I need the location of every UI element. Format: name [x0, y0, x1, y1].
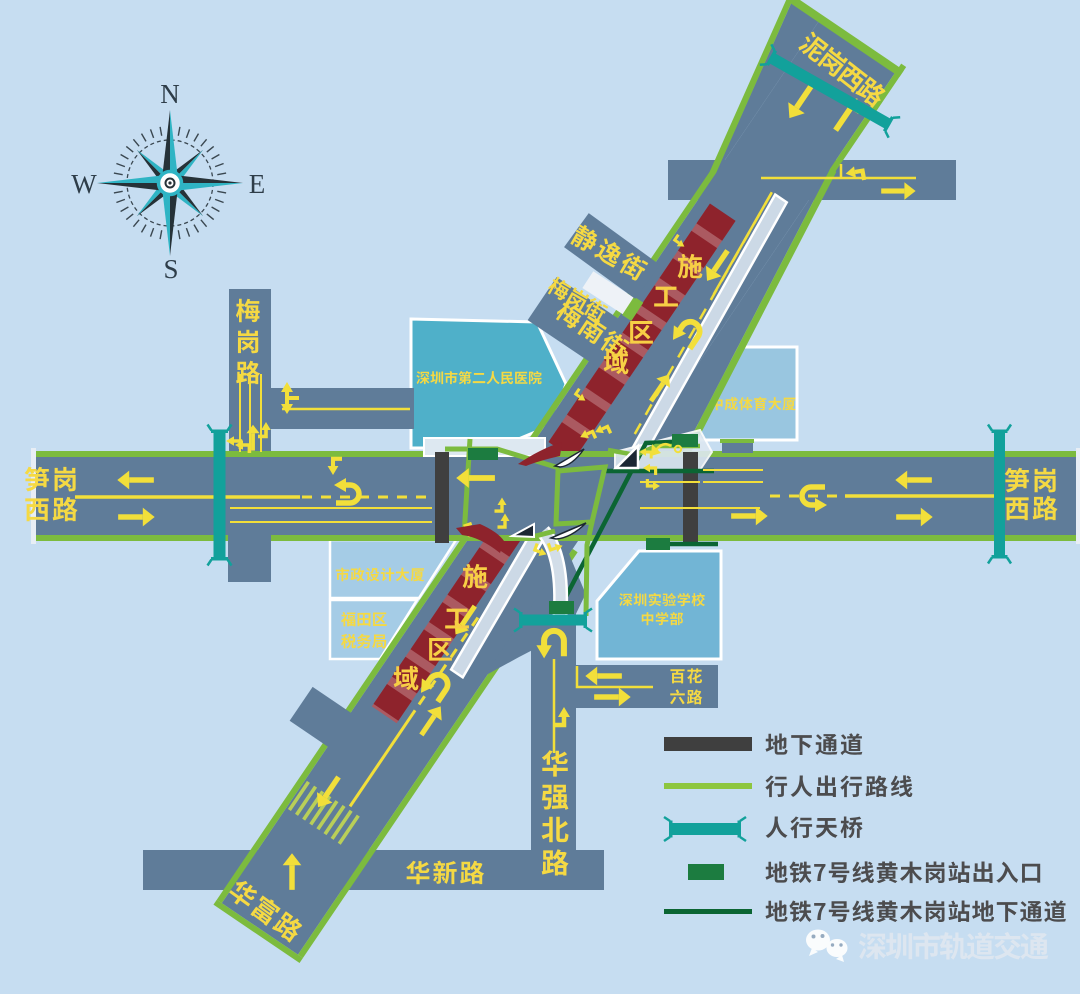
svg-text:E: E	[249, 169, 266, 199]
svg-text:S: S	[163, 254, 178, 284]
svg-text:N: N	[160, 79, 180, 109]
svg-text:W: W	[71, 169, 97, 199]
